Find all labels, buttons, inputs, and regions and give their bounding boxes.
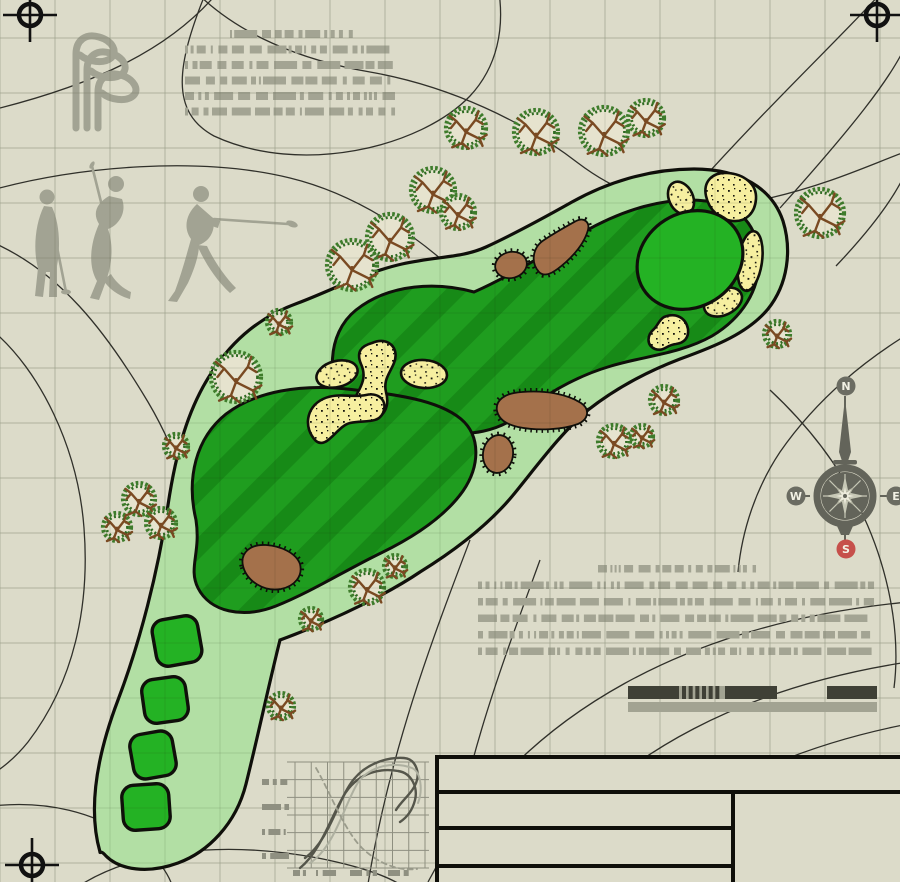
compass-north-badge: N (837, 377, 856, 396)
title-block (437, 757, 900, 882)
scale-bar (628, 686, 877, 712)
golf-hole-plan-sheet: NWES (0, 0, 900, 882)
tee-box (150, 614, 203, 668)
compass-east-badge-label: E (892, 490, 900, 503)
tree-icon (146, 508, 177, 539)
tree-icon (327, 240, 377, 290)
compass-west-badge: W (787, 487, 806, 506)
compass-west-badge-label: W (790, 490, 802, 503)
compass-south-badge: S (837, 540, 856, 559)
title-block-frame (437, 757, 900, 882)
tee-box (121, 783, 171, 831)
compass-south-badge-label: S (842, 543, 850, 556)
compass-north-badge-label: N (841, 380, 850, 393)
tee-box (128, 729, 178, 781)
plan-canvas: NWES (0, 0, 900, 882)
tree-icon (211, 352, 261, 402)
